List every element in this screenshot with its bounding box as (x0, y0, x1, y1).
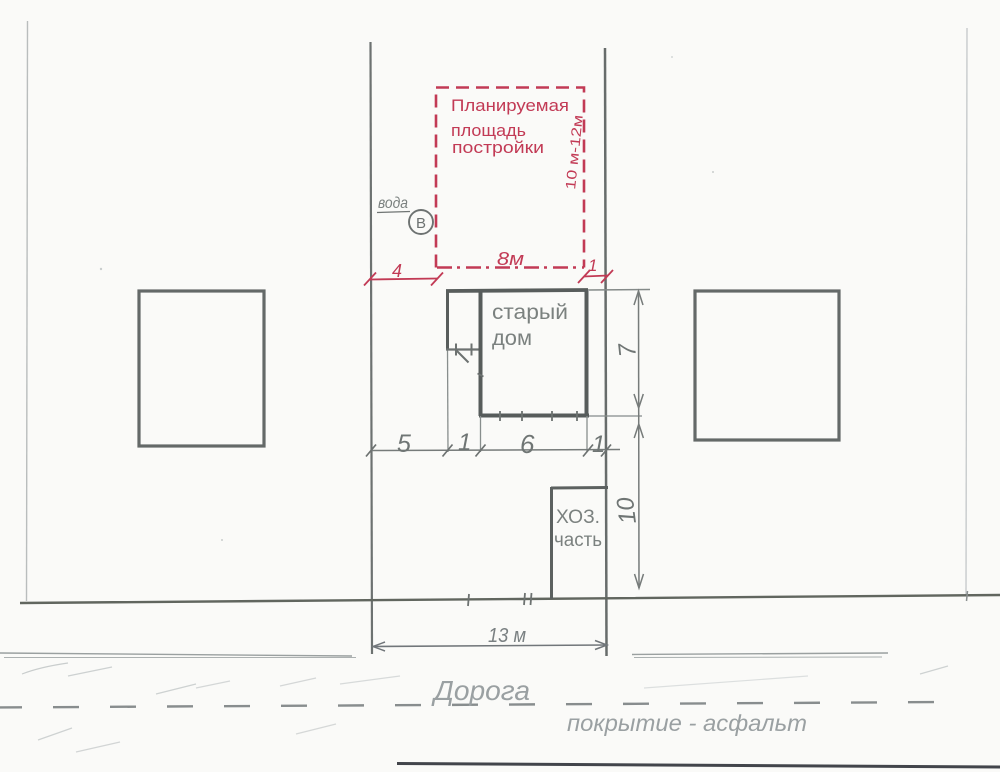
svg-text:Планируемая: Планируемая (451, 96, 569, 115)
svg-text:13 м: 13 м (488, 625, 526, 647)
svg-text:10: 10 (612, 495, 642, 525)
svg-text:старый: старый (492, 301, 568, 324)
svg-text:вода: вода (378, 195, 408, 212)
svg-text:дом: дом (492, 327, 532, 350)
svg-text:Дорога: Дорога (431, 675, 530, 706)
svg-text:постройки: постройки (452, 138, 544, 157)
svg-text:В: В (416, 215, 426, 232)
svg-text:ХОЗ.: ХОЗ. (556, 507, 600, 528)
svg-text:4: 4 (392, 261, 402, 281)
svg-text:1: 1 (592, 431, 605, 458)
svg-text:8м: 8м (497, 249, 524, 269)
svg-text:часть: часть (554, 530, 602, 551)
svg-text:6: 6 (520, 429, 535, 459)
svg-text:покрытие - асфальт: покрытие - асфальт (567, 710, 807, 736)
svg-text:1: 1 (588, 256, 597, 275)
svg-text:1: 1 (458, 429, 471, 456)
svg-text:5: 5 (397, 430, 411, 458)
